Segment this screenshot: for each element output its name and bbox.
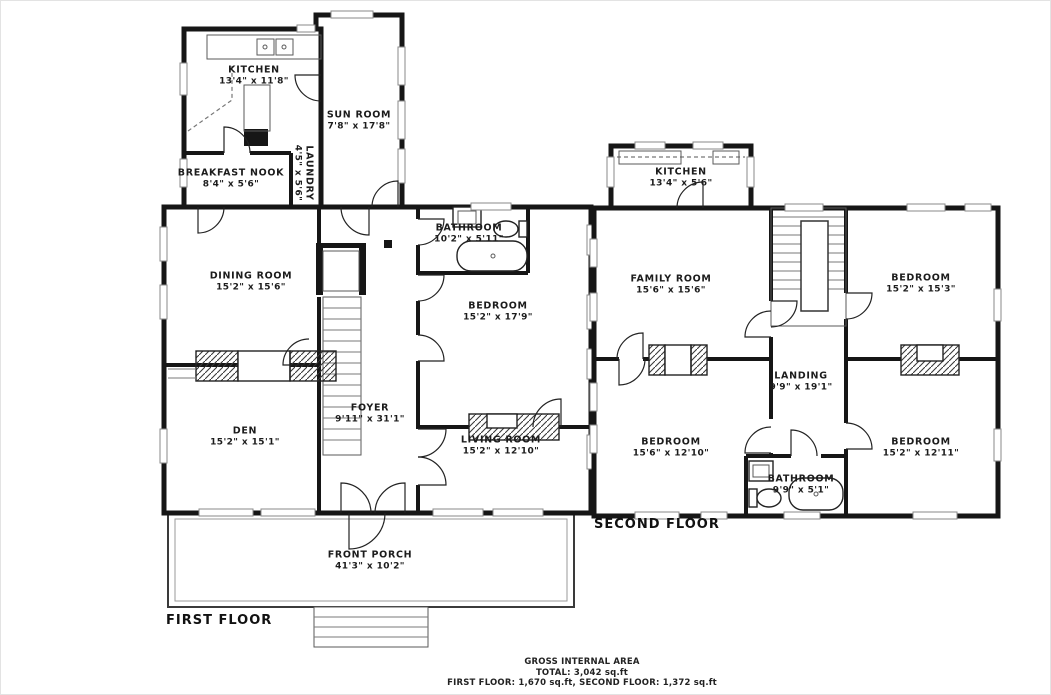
room-label-kitchen-1f: KITCHEN 13'4" x 11'8"	[219, 64, 289, 87]
room-label-bedroom-2f-top-right: BEDROOM 15'2" x 15'3"	[886, 272, 956, 295]
footer-line-3: FIRST FLOOR: 1,670 sq.ft, SECOND FLOOR: …	[447, 678, 717, 689]
room-label-family-room: FAMILY ROOM 15'6" x 15'6"	[630, 273, 711, 296]
room-label-front-porch: FRONT PORCH 41'3" x 10'2"	[328, 549, 413, 572]
floorplan-page: KITCHEN 13'4" x 11'8" SUN ROOM 7'8" x 17…	[0, 0, 1051, 695]
room-label-living-room: LIVING ROOM 15'2" x 12'10"	[461, 434, 541, 457]
footer-line-1: GROSS INTERNAL AREA	[447, 657, 717, 668]
room-label-bathroom-1f: BATHROOM 10'2" x 5'11"	[434, 222, 504, 245]
room-label-bedroom-2f-bottom-right: BEDROOM 15'2" x 12'11"	[883, 436, 959, 459]
room-label-bedroom-2f-bottom-left: BEDROOM 15'6" x 12'10"	[633, 436, 709, 459]
chimney-marker	[384, 240, 392, 248]
stair-railing-icon	[801, 221, 828, 311]
fireplace-icon-family-bedroom	[649, 345, 707, 375]
room-label-dining-room: DINING ROOM 15'2" x 15'6"	[210, 270, 293, 293]
room-label-bedroom-1f: BEDROOM 15'2" x 17'9"	[463, 300, 533, 323]
footer-line-2: TOTAL: 3,042 sq.ft	[447, 668, 717, 679]
room-label-breakfast-nook: BREAKFAST NOOK 8'4" x 5'6"	[178, 167, 284, 190]
room-label-den: DEN 15'2" x 15'1"	[210, 425, 280, 448]
room-label-kitchen-2f: KITCHEN 13'4" x 5'6"	[649, 166, 712, 189]
first-floor-title: FIRST FLOOR	[166, 613, 272, 628]
floorplan-drawing	[1, 1, 1051, 695]
fireplace-icon-bedrooms-right	[901, 345, 959, 375]
second-floor-title: SECOND FLOOR	[594, 517, 720, 532]
room-label-bathroom-2f: BATHROOM 9'9" x 5'1"	[768, 473, 835, 496]
room-label-laundry: LAUNDRY 4'5" x 5'6"	[291, 145, 314, 201]
second-floor-plan	[590, 142, 1001, 519]
room-label-foyer: FOYER 9'11" x 31'1"	[335, 402, 405, 425]
porch-steps-icon	[314, 607, 428, 647]
room-label-landing: LANDING 9'9" x 19'1"	[769, 370, 832, 393]
room-label-sun-room: SUN ROOM 7'8" x 17'8"	[327, 109, 391, 132]
gross-internal-area-note: GROSS INTERNAL AREA TOTAL: 3,042 sq.ft F…	[447, 657, 717, 689]
